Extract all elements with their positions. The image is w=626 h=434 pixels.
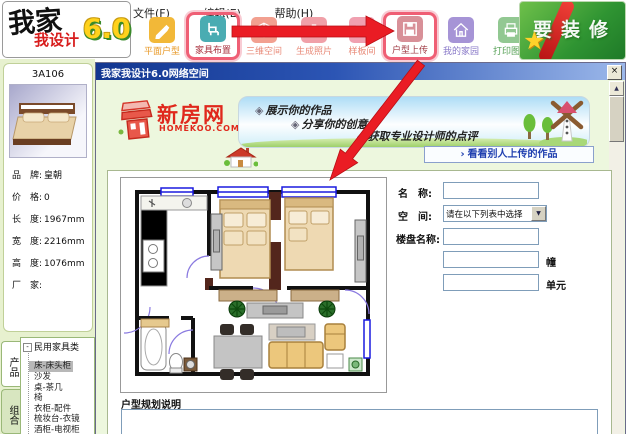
renovation-ad-banner[interactable]: ★ 要装修 bbox=[519, 1, 626, 60]
balcony-plant bbox=[349, 358, 362, 371]
toilet bbox=[170, 354, 183, 374]
slogan-banner: ◈展示你的作品 ◈分享你的创意 ◈获取专业设计师的点评 bbox=[238, 96, 590, 148]
product-code: 3A106 bbox=[4, 64, 92, 80]
tree-item[interactable]: 沙发 bbox=[29, 372, 94, 383]
name-input[interactable] bbox=[443, 182, 539, 199]
unit-input[interactable] bbox=[443, 274, 539, 291]
chair-icon bbox=[204, 20, 222, 38]
site-domain: HOMEKOO.COM bbox=[159, 124, 240, 133]
side-table bbox=[327, 354, 343, 368]
close-icon[interactable]: × bbox=[607, 65, 622, 80]
showroom-icon bbox=[353, 21, 371, 39]
tree-item[interactable]: 椅 bbox=[29, 393, 94, 404]
slogan-3: ◈获取专业设计师的点评 bbox=[357, 128, 477, 144]
building-suffix-label: 幢 bbox=[546, 254, 556, 269]
toolbar-item-myhome[interactable]: 我的家园 bbox=[437, 17, 485, 57]
kitchen-counter bbox=[141, 196, 207, 286]
product-property-row: 高 度:1076mm bbox=[12, 253, 92, 275]
bed-preview-illustration bbox=[10, 85, 84, 155]
tree-root-node[interactable]: -民用家具类 bbox=[21, 338, 94, 353]
diamond-bullet-icon: ◈ bbox=[357, 130, 365, 143]
toolbar-item-upload[interactable]: 户型上传 bbox=[383, 12, 437, 60]
product-property-row: 价 格:0 bbox=[12, 187, 92, 209]
door-arc bbox=[169, 330, 193, 354]
tree-item[interactable]: 梳妆台-衣镜 bbox=[29, 414, 94, 425]
toolbar-label: 生成照片 bbox=[290, 44, 338, 57]
floppy-upload-icon bbox=[401, 20, 419, 38]
camera-icon bbox=[305, 21, 323, 39]
tree-item[interactable]: 酒柜-电视柜 bbox=[29, 425, 94, 434]
tree-item[interactable]: 桌-茶几 bbox=[29, 383, 94, 394]
product-property-row: 品 牌:皇朝 bbox=[12, 165, 92, 187]
toolbar-label: 三维空间 bbox=[240, 44, 288, 57]
floor-plan-preview bbox=[120, 177, 387, 393]
toolbar-item-plan[interactable]: 平面户型 bbox=[138, 17, 186, 57]
toolbar-item-furniture[interactable]: 家具布置 bbox=[186, 12, 240, 60]
bathroom-shelf bbox=[141, 319, 169, 327]
armchair bbox=[325, 324, 345, 350]
pencil-icon bbox=[153, 21, 171, 39]
scroll-up-icon[interactable]: ▲ bbox=[609, 81, 624, 96]
ad-text: 要装修 bbox=[533, 15, 617, 42]
product-preview-image bbox=[9, 84, 87, 158]
house-icon bbox=[452, 21, 470, 39]
toolbar-item-photo[interactable]: 生成照片 bbox=[290, 17, 338, 57]
unit-suffix-label: 单元 bbox=[546, 277, 566, 292]
toolbar-label: 家具布置 bbox=[189, 43, 237, 56]
toolbar-label: 平面户型 bbox=[138, 44, 186, 57]
plan-description-textarea[interactable] bbox=[121, 409, 598, 434]
view-others-uploads-button[interactable]: ›看看别人上传的作品 bbox=[424, 146, 594, 163]
tree-item[interactable]: 床-床头柜 bbox=[29, 361, 73, 372]
logo-part2: 我设计 bbox=[34, 29, 79, 50]
toolbar-label: 我的家园 bbox=[437, 44, 485, 57]
space-select[interactable]: 请在以下列表中选择 ▼ bbox=[443, 205, 547, 222]
scrollbar-thumb[interactable] bbox=[609, 96, 624, 142]
app-logo: 我家 我设计 6.0 bbox=[2, 1, 131, 58]
toolbar-label: 样板间 bbox=[338, 44, 386, 57]
toolbar-label: 户型上传 bbox=[386, 43, 434, 56]
toolbar-item-3d[interactable]: 三维空间 bbox=[240, 17, 288, 57]
printer-icon bbox=[502, 21, 520, 39]
dialog-title: 我家我设计6.0网络空间 bbox=[96, 63, 625, 80]
app-window: 我家 我设计 6.0 文件(F) 编辑(E) 帮助(H) 平面户型 家具布置 三… bbox=[0, 0, 626, 434]
view-others-uploads-label: 看看别人上传的作品 bbox=[468, 149, 558, 160]
chevron-down-icon[interactable]: ▼ bbox=[531, 206, 546, 221]
name-label: 名 称: bbox=[398, 185, 432, 200]
slogan-2: ◈分享你的创意 bbox=[291, 116, 367, 132]
furniture-category-tree: -民用家具类 床-床头柜 沙发 桌-茶几 椅 衣柜-配件 梳妆台-衣镜 酒柜-电… bbox=[20, 337, 95, 434]
diamond-bullet-icon: ◈ bbox=[291, 118, 299, 131]
building-input[interactable] bbox=[443, 251, 539, 268]
star-icon: ★ bbox=[523, 26, 545, 55]
space-select-value: 请在以下列表中选择 bbox=[444, 208, 531, 220]
homekoo-logo-icon bbox=[118, 98, 156, 142]
tree-collapse-icon[interactable]: - bbox=[23, 343, 32, 352]
sofa bbox=[269, 324, 323, 368]
house-illustration bbox=[224, 146, 258, 172]
door-arc bbox=[187, 256, 209, 278]
dining-table bbox=[214, 324, 262, 380]
floor-plan-svg bbox=[121, 178, 384, 390]
product-detail-card: 3A106 品 牌:皇朝 价 格:0 长 度:1967mm 宽 度:2216mm… bbox=[3, 63, 93, 332]
toolbar-item-showroom[interactable]: 样板间 bbox=[338, 17, 386, 57]
bathtub bbox=[141, 324, 166, 370]
dialog-titlebar[interactable]: 我家我设计6.0网络空间 bbox=[96, 63, 625, 80]
chevron-right-icon: › bbox=[460, 149, 464, 160]
bed-2 bbox=[285, 198, 333, 270]
diamond-bullet-icon: ◈ bbox=[255, 104, 263, 117]
tree-item[interactable]: 衣柜-配件 bbox=[29, 404, 94, 415]
door-arc bbox=[345, 290, 369, 314]
estate-label: 楼盘名称: bbox=[396, 231, 440, 246]
sidebar-tab-combos[interactable]: 组合 bbox=[1, 389, 20, 434]
space-label: 空 间: bbox=[398, 208, 432, 223]
bed-1 bbox=[220, 200, 270, 278]
product-property-row: 厂 家: bbox=[12, 275, 92, 297]
logo-version: 6.0 bbox=[83, 14, 131, 45]
bathroom-basin bbox=[184, 358, 197, 371]
trees-windmill-illustration bbox=[477, 99, 587, 148]
estate-input[interactable] bbox=[443, 228, 539, 245]
cube-icon bbox=[255, 21, 273, 39]
balcony-door-window bbox=[364, 320, 370, 358]
product-property-row: 长 度:1967mm bbox=[12, 209, 92, 231]
product-property-row: 宽 度:2216mm bbox=[12, 231, 92, 253]
sidebar-tab-products[interactable]: 产品 bbox=[1, 341, 20, 387]
